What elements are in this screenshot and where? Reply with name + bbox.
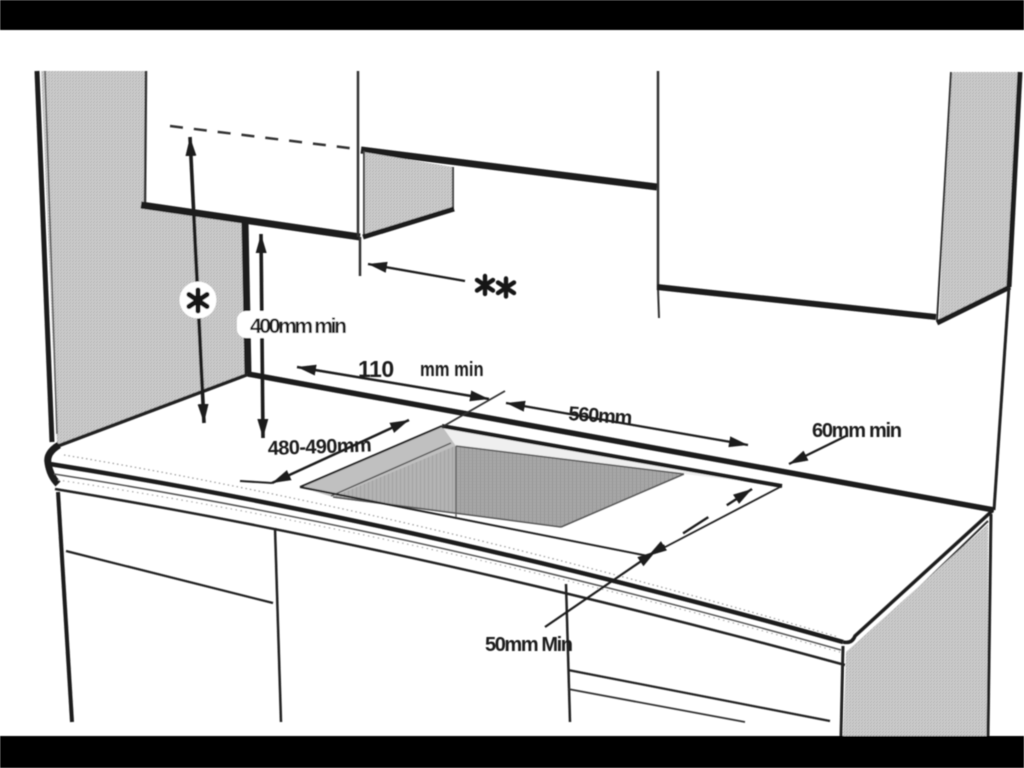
svg-text:mm min: mm min xyxy=(420,358,484,381)
svg-text:50mm Min: 50mm Min xyxy=(485,634,573,656)
svg-text:480-490mm: 480-490mm xyxy=(267,434,372,460)
svg-text:560mm: 560mm xyxy=(568,403,633,429)
svg-text:400mm min: 400mm min xyxy=(250,315,347,338)
svg-text:60mm min: 60mm min xyxy=(812,420,902,442)
svg-text:110: 110 xyxy=(358,356,394,382)
